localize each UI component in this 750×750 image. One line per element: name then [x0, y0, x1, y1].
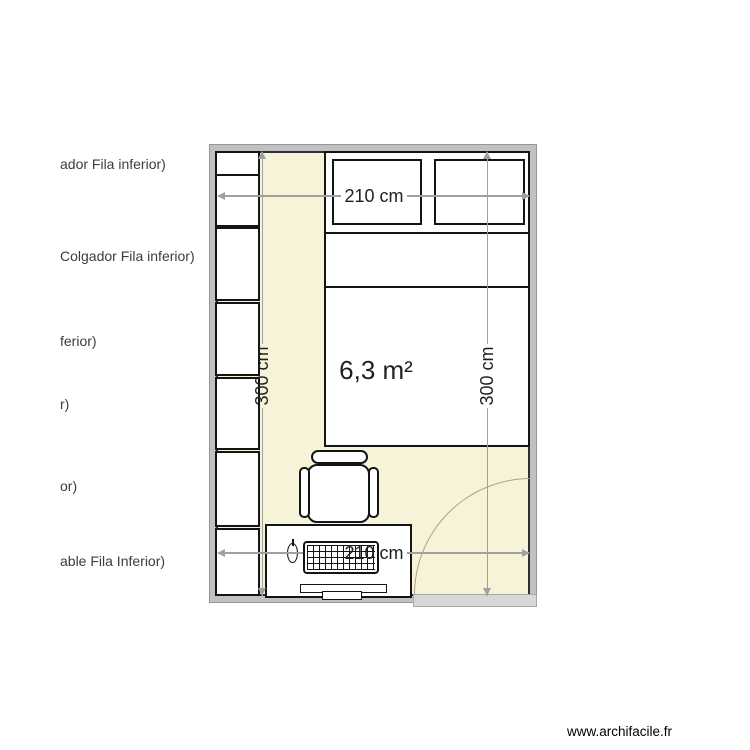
- arrow-left-icon: [217, 192, 225, 200]
- mouse-cable-icon: [292, 539, 294, 546]
- furniture-label: Colgador Fila inferior): [60, 249, 195, 264]
- arrow-down-icon: [483, 588, 491, 596]
- pillow-right: [434, 159, 525, 225]
- chair-armrest-right: [368, 467, 379, 518]
- bed-headboard-line: [326, 232, 528, 234]
- dimension-line-left: [262, 408, 264, 596]
- furniture-label: r): [60, 397, 69, 412]
- furniture-label: able Fila Inferior): [60, 554, 165, 569]
- dimension-label-top: 210 cm: [324, 186, 424, 207]
- door-opening[interactable]: [413, 594, 537, 607]
- chair-seat[interactable]: [307, 464, 370, 523]
- furniture-label: ferior): [60, 334, 97, 349]
- wardrobe-cell[interactable]: [215, 227, 260, 301]
- dimension-label-right: 300 cm: [478, 341, 496, 411]
- dimension-label-left: 300 cm: [253, 341, 271, 411]
- floor-plan-canvas: ador Fila inferior) Colgador Fila inferi…: [0, 0, 750, 750]
- dimension-line-right: [487, 408, 489, 596]
- wardrobe-cell[interactable]: [215, 451, 260, 527]
- dimension-line-right: [487, 152, 489, 344]
- watermark: www.archifacile.fr: [567, 724, 672, 739]
- dimension-label-bottom: 210 cm: [324, 543, 424, 564]
- arrow-up-icon: [258, 151, 266, 159]
- dimension-line-top: [220, 195, 341, 197]
- room-area-label: 6,3 m²: [326, 355, 426, 386]
- chair-armrest-left: [299, 467, 310, 518]
- arrow-left-icon: [217, 549, 225, 557]
- monitor-stand-icon: [322, 591, 362, 600]
- wardrobe-cell[interactable]: [215, 174, 260, 227]
- furniture-label: or): [60, 479, 77, 494]
- wardrobe-cell[interactable]: [215, 151, 260, 176]
- furniture-label: ador Fila inferior): [60, 157, 166, 172]
- dimension-line-left: [262, 152, 264, 344]
- dimension-line-bottom: [407, 552, 529, 554]
- arrow-right-icon: [522, 192, 530, 200]
- bed-blanket-line: [326, 286, 528, 288]
- arrow-up-icon: [483, 151, 491, 159]
- dimension-line-top: [407, 195, 529, 197]
- wardrobe-cell[interactable]: [215, 528, 260, 596]
- arrow-right-icon: [522, 549, 530, 557]
- arrow-down-icon: [258, 588, 266, 596]
